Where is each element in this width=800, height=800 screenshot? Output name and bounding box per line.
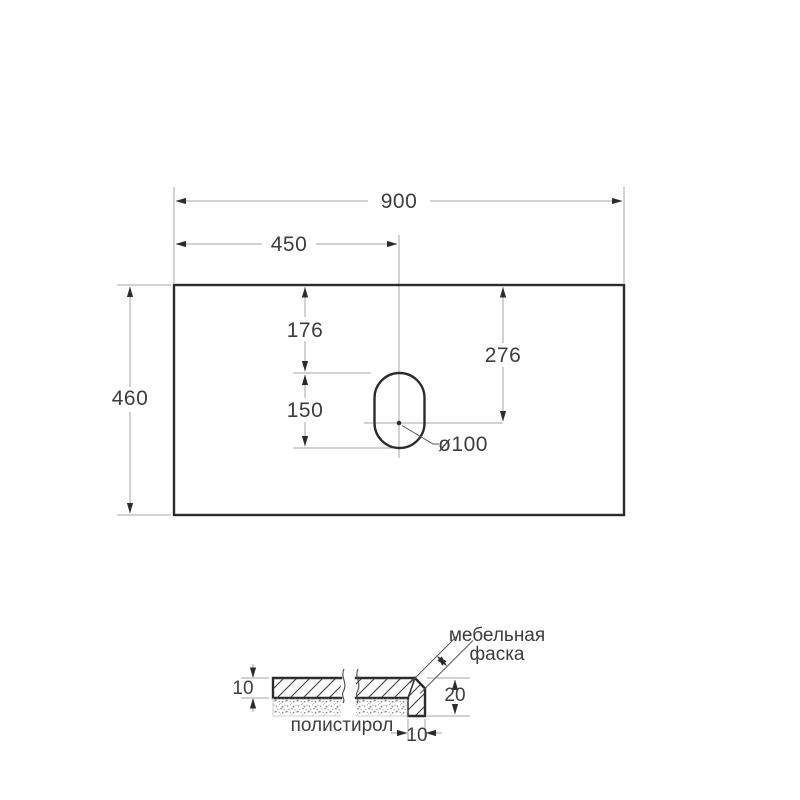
dim-150-label: 150 — [287, 399, 324, 422]
arrowhead — [387, 241, 398, 247]
section-filler-layer: полистирол — [273, 698, 408, 736]
hole-diameter-label: ø100 — [438, 433, 488, 456]
dim-10-bottom-label: 10 — [406, 725, 427, 746]
speckled-area — [356, 698, 408, 716]
arrowhead — [500, 287, 506, 298]
top-view: 900 450 460 176 — [112, 187, 624, 515]
dim-center-offset: 450 — [176, 233, 398, 256]
dim-460-label: 460 — [112, 387, 149, 410]
dim-edge-to-hole-center: 276 — [485, 287, 522, 422]
dim-total-depth: 460 — [112, 285, 171, 515]
chamfer-label-line2: фаска — [470, 644, 525, 665]
dim-20-label: 20 — [444, 685, 465, 706]
arrowhead — [612, 198, 623, 204]
dim-hole-length: 150 — [287, 375, 324, 447]
dim-450-label: 450 — [271, 233, 308, 256]
dim-176-label: 176 — [287, 319, 324, 342]
dim-edge-width: 10 — [391, 719, 442, 746]
countertop-technical-drawing: 900 450 460 176 — [0, 0, 800, 800]
dim-top-thickness: 10 — [232, 664, 269, 712]
arrowhead — [250, 668, 256, 679]
section-view: полистирол 10 20 — [232, 625, 545, 746]
dim-900-label: 900 — [381, 190, 418, 213]
break-line — [343, 669, 345, 703]
dim-10-top-label: 10 — [232, 678, 253, 699]
chamfer-label-line1: мебельная — [449, 625, 545, 646]
dim-edge-to-hole-top: 176 — [287, 287, 324, 372]
faucet-hole: ø100 — [375, 373, 488, 456]
arrowhead — [176, 241, 187, 247]
speckled-area — [273, 698, 341, 716]
arrowhead — [250, 698, 256, 709]
arrowhead — [302, 361, 308, 372]
arrowhead — [302, 287, 308, 298]
arrowhead — [176, 198, 187, 204]
dim-edge-height: 20 — [427, 678, 470, 716]
hole-center-dot — [397, 421, 402, 426]
chamfer-callout: мебельная фаска — [410, 625, 545, 694]
dim-276-label: 276 — [485, 344, 522, 367]
filler-label: полистирол — [291, 715, 394, 736]
arrowhead — [302, 375, 308, 386]
arrowhead — [127, 287, 133, 298]
arrowhead — [500, 411, 506, 422]
arrowhead — [302, 436, 308, 447]
hatched-area — [356, 678, 415, 698]
arrowhead — [127, 503, 133, 514]
hatched-area — [273, 678, 341, 698]
